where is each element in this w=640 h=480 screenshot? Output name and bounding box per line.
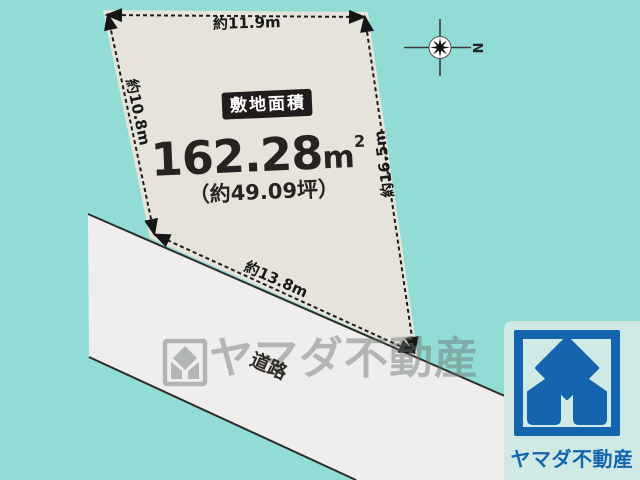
compass-north-label: N (469, 43, 484, 54)
watermark: ヤマダ不動産 (165, 333, 479, 384)
brand-company-name: ヤマダ不動産 (511, 447, 634, 471)
land-plot-diagram: 約11.9m 約10.8m 約16.5m 約13.8m ヤマダ不動産 道路 N … (0, 0, 640, 480)
site-area-badge-label: 敷地面積 (230, 92, 307, 116)
dimension-label-top: 約11.9m (213, 13, 281, 33)
diagram-canvas: 約11.9m 約10.8m 約16.5m 約13.8m ヤマダ不動産 道路 N … (0, 0, 640, 480)
compass-star-icon (430, 38, 450, 58)
site-area-unit: m (322, 139, 356, 176)
brand-logo-card: ヤマダ不動産 (504, 321, 640, 480)
site-area-superscript: 2 (354, 131, 366, 150)
watermark-text: ヤマダ不動産 (209, 333, 479, 384)
